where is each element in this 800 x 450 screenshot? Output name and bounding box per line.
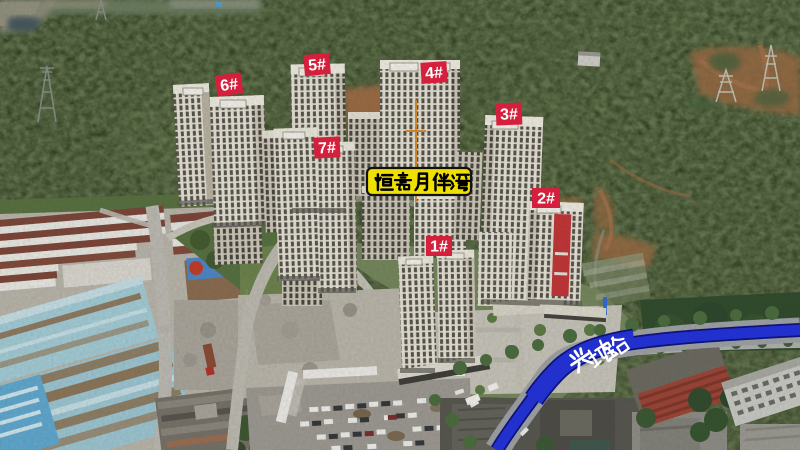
svg-text:1#: 1# [430,239,448,256]
svg-text:4#: 4# [425,64,444,82]
svg-text:3#: 3# [500,106,518,124]
svg-text:7#: 7# [318,140,337,158]
svg-text:5#: 5# [308,56,327,74]
svg-text:6#: 6# [219,76,239,95]
svg-text:2#: 2# [537,191,555,208]
